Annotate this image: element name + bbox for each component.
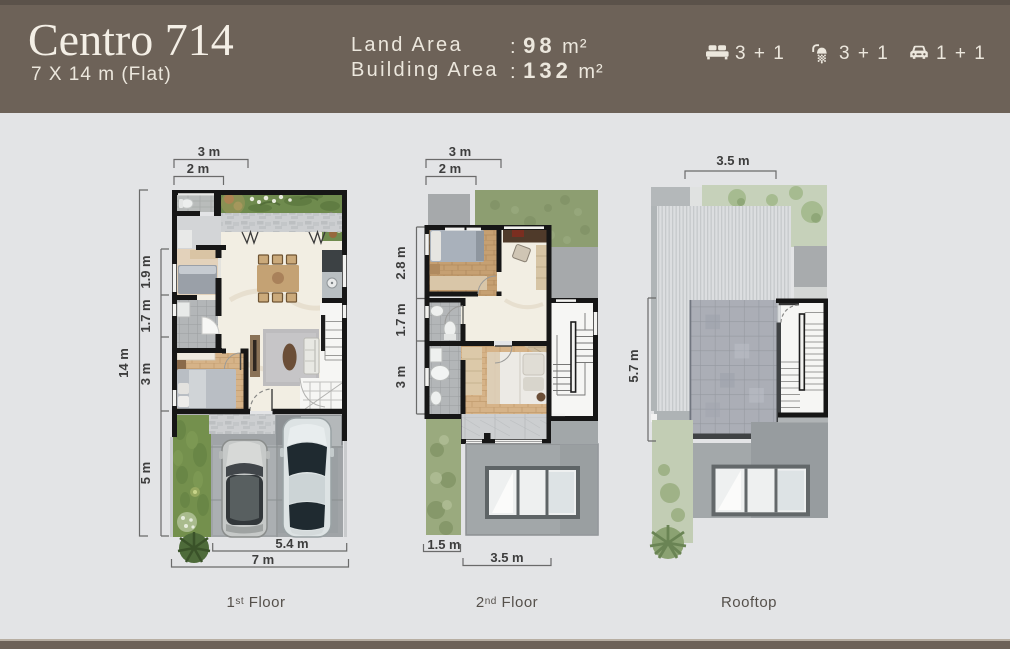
svg-text:2.8 m: 2.8 m [393, 246, 408, 279]
svg-text:5.7 m: 5.7 m [626, 349, 641, 382]
svg-text:1.9 m: 1.9 m [138, 255, 153, 288]
svg-text:2 m: 2 m [187, 161, 209, 176]
svg-text:1.7 m: 1.7 m [393, 303, 408, 336]
svg-text:3.5 m: 3.5 m [490, 550, 523, 565]
svg-text:1.5 m: 1.5 m [427, 537, 460, 552]
svg-text:1st Floor: 1st Floor [227, 594, 286, 611]
svg-text:3 m: 3 m [198, 144, 220, 159]
svg-text:14 m: 14 m [116, 348, 131, 378]
svg-text:Rooftop: Rooftop [721, 594, 777, 611]
svg-text:3 m: 3 m [393, 366, 408, 388]
svg-text:2 m: 2 m [439, 161, 461, 176]
svg-text:7 m: 7 m [252, 552, 274, 567]
svg-text:1.7 m: 1.7 m [138, 299, 153, 332]
svg-text:3 m: 3 m [449, 144, 471, 159]
svg-text:5.4 m: 5.4 m [275, 536, 308, 551]
svg-text:2nd Floor: 2nd Floor [476, 594, 538, 611]
svg-text:5 m: 5 m [138, 462, 153, 484]
svg-text:3 m: 3 m [138, 363, 153, 385]
svg-text:3.5 m: 3.5 m [716, 153, 749, 168]
